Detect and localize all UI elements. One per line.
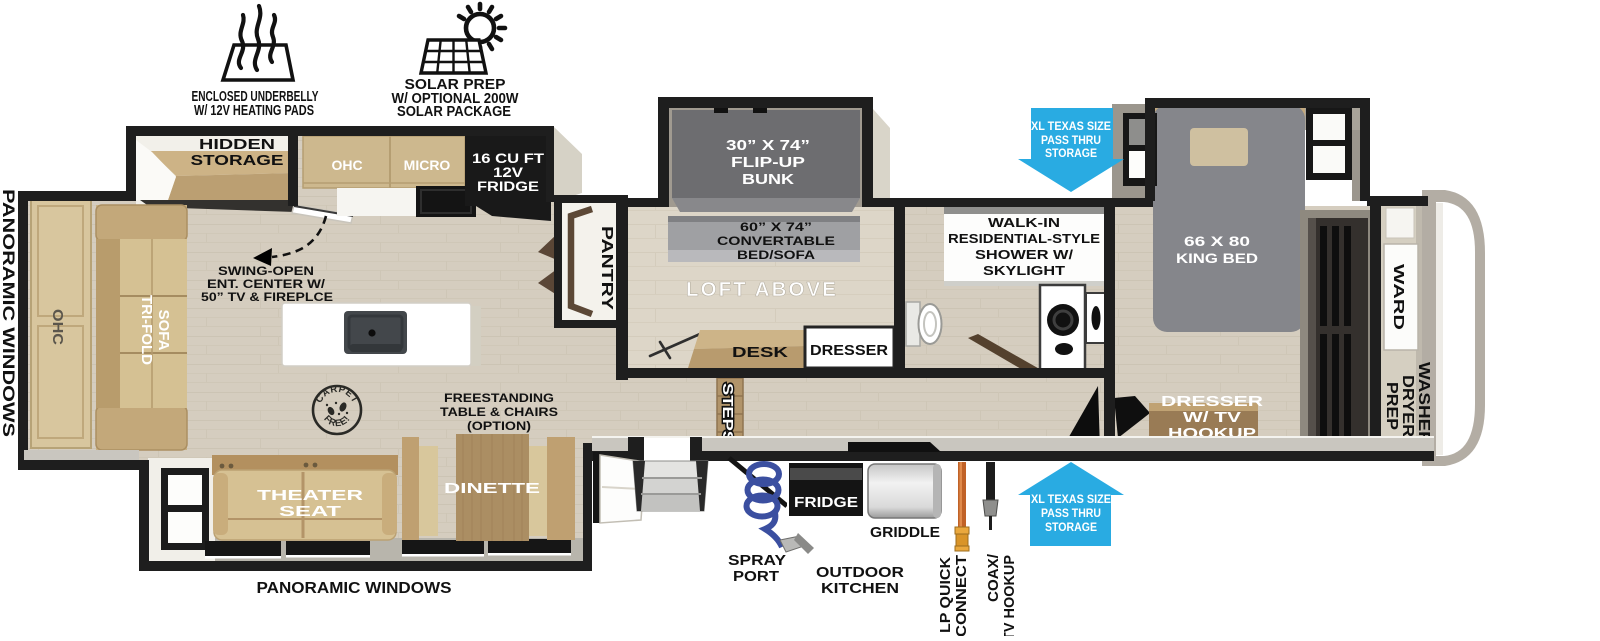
svg-text:CONVERTABLE: CONVERTABLE <box>717 234 835 248</box>
svg-text:LP QUICK: LP QUICK <box>937 557 954 633</box>
svg-text:PORT: PORT <box>733 568 779 585</box>
svg-text:XL TEXAS SIZE: XL TEXAS SIZE <box>1031 494 1111 506</box>
svg-text:50” TV & FIREPLCE: 50” TV & FIREPLCE <box>201 290 333 304</box>
svg-text:OHC: OHC <box>49 309 66 345</box>
svg-text:TRI-FOLD: TRI-FOLD <box>138 295 155 365</box>
svg-text:STEPS: STEPS <box>719 383 735 443</box>
svg-text:BUNK: BUNK <box>742 172 795 188</box>
svg-text:XL TEXAS SIZE: XL TEXAS SIZE <box>1031 121 1111 133</box>
svg-text:SEAT: SEAT <box>279 504 341 520</box>
svg-text:WALK-IN: WALK-IN <box>988 215 1060 230</box>
svg-text:PREP: PREP <box>1383 382 1400 430</box>
svg-text:WARD: WARD <box>1390 264 1407 330</box>
svg-text:DRESSER: DRESSER <box>810 343 889 359</box>
svg-text:PASS THRU: PASS THRU <box>1041 508 1101 520</box>
svg-text:OUTDOOR: OUTDOOR <box>816 564 904 581</box>
svg-text:DESK: DESK <box>732 344 788 361</box>
svg-text:DRYER: DRYER <box>1399 375 1416 437</box>
svg-text:PANTRY: PANTRY <box>598 226 615 310</box>
svg-text:SHOWER W/: SHOWER W/ <box>975 247 1074 262</box>
svg-text:GRIDDLE: GRIDDLE <box>870 524 940 541</box>
svg-text:FRIDGE: FRIDGE <box>794 495 858 511</box>
svg-text:SOLAR PACKAGE: SOLAR PACKAGE <box>397 104 511 120</box>
svg-text:FREESTANDING: FREESTANDING <box>444 391 554 405</box>
svg-text:HIDDEN: HIDDEN <box>199 136 275 153</box>
svg-text:STORAGE: STORAGE <box>1045 148 1097 160</box>
svg-text:OHC: OHC <box>331 157 362 173</box>
svg-text:30” X 74”: 30” X 74” <box>726 138 810 154</box>
svg-text:SPRAY: SPRAY <box>728 552 786 569</box>
svg-text:STORAGE: STORAGE <box>1045 522 1097 534</box>
svg-text:KITCHEN: KITCHEN <box>821 580 899 597</box>
svg-text:W/ TV: W/ TV <box>1183 410 1241 426</box>
svg-text:DINETTE: DINETTE <box>444 480 540 497</box>
svg-text:SOFA: SOFA <box>155 310 172 351</box>
svg-text:PANORAMIC WINDOWS: PANORAMIC WINDOWS <box>257 580 452 597</box>
svg-text:FLIP-UP: FLIP-UP <box>731 155 805 171</box>
svg-text:RESIDENTIAL-STYLE: RESIDENTIAL-STYLE <box>948 231 1101 246</box>
svg-text:(OPTION): (OPTION) <box>467 419 531 433</box>
svg-text:THEATER: THEATER <box>257 488 364 504</box>
svg-text:TABLE & CHAIRS: TABLE & CHAIRS <box>440 405 558 419</box>
svg-text:TV HOOKUP: TV HOOKUP <box>1001 555 1018 636</box>
svg-text:SWING-OPEN: SWING-OPEN <box>218 264 314 278</box>
svg-text:PASS THRU: PASS THRU <box>1041 135 1101 147</box>
svg-text:ENT. CENTER W/: ENT. CENTER W/ <box>207 277 326 291</box>
svg-text:DRESSER: DRESSER <box>1161 394 1264 410</box>
svg-text:STORAGE: STORAGE <box>191 152 284 169</box>
svg-text:PANORAMIC WINDOWS: PANORAMIC WINDOWS <box>0 189 18 437</box>
svg-text:12V: 12V <box>493 165 523 180</box>
svg-text:60” X 74”: 60” X 74” <box>740 220 812 234</box>
svg-text:16 CU FT: 16 CU FT <box>472 151 545 166</box>
svg-text:FRIDGE: FRIDGE <box>477 179 539 194</box>
svg-text:MICRO: MICRO <box>404 157 451 173</box>
svg-text:KING BED: KING BED <box>1176 251 1258 266</box>
svg-text:LOFT ABOVE: LOFT ABOVE <box>686 279 838 301</box>
svg-text:W/ 12V HEATING PADS: W/ 12V HEATING PADS <box>194 103 314 119</box>
svg-text:COAX/: COAX/ <box>985 553 1002 602</box>
svg-text:CONNECT: CONNECT <box>953 555 970 636</box>
svg-text:BED/SOFA: BED/SOFA <box>737 248 815 262</box>
svg-text:66 X 80: 66 X 80 <box>1184 234 1250 249</box>
svg-text:SKYLIGHT: SKYLIGHT <box>983 263 1065 278</box>
